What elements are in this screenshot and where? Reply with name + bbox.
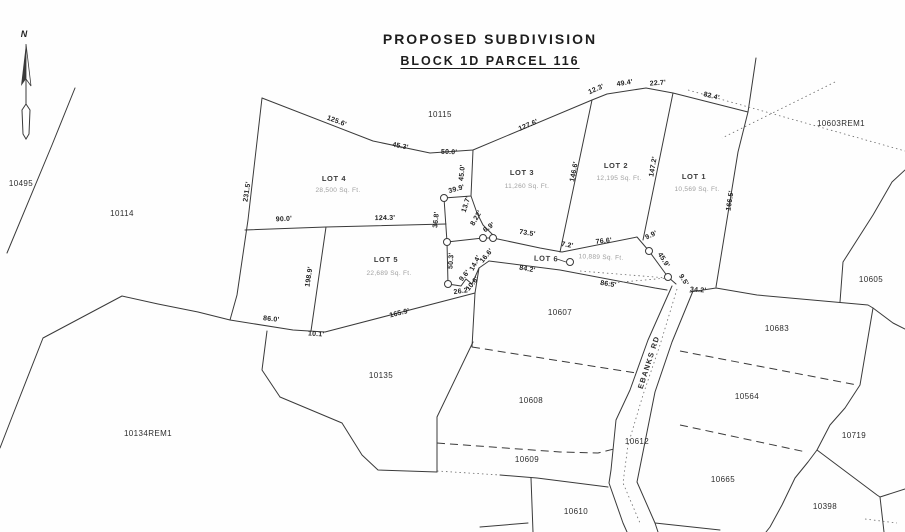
monument-icon [441,195,448,202]
boundary-line-dashed [437,443,614,453]
dimension-label: 86.5' [600,280,617,289]
boundary-line [748,58,756,112]
boundary-line [500,475,608,487]
boundary-line [489,261,667,290]
dimension-label: 146.6' [569,161,580,182]
parcel-number: 10608 [519,396,543,405]
lot6-leader-line [557,259,566,262]
boundary-line [7,88,75,253]
dimension-label: 166.5' [725,190,735,211]
boundary-line [311,227,326,331]
parcel-number: 10609 [515,455,539,464]
monument-icon [480,235,487,242]
dimension-label: 34.2' [690,286,707,294]
dimension-label: 165.9' [389,308,411,320]
dimension-label: 198.9' [304,266,314,287]
boundary-line-dashed [680,425,806,452]
parcel-number: 10135 [369,371,393,380]
dimension-label: 9.6' [458,269,471,283]
monument-icon [490,235,497,242]
lot-area-label: 12,195 Sq. Ft. [596,175,641,182]
boundary-line [280,397,437,472]
north-arrow-head-left [21,44,26,86]
boundary-line-dotted [580,271,667,284]
boundary-line [643,93,673,240]
parcel-number: 10603REM1 [817,119,865,128]
monument-icon [444,239,451,246]
road-centerline-dotted [623,289,677,523]
dimension-label: 86.0' [263,315,280,324]
plat-drawing: N [0,0,905,532]
parcel-number: 10683 [765,324,789,333]
dimension-label: 13.7' [461,196,473,214]
boundary-line [880,489,905,497]
dimension-label: 147.2' [648,156,658,177]
monument-icon [445,281,452,288]
dimension-label: 231.5' [242,181,252,202]
dimension-label: 90.0' [276,216,293,224]
boundary-line-dashed [680,351,857,385]
boundary-line [817,450,884,532]
road-edge-west [609,286,672,532]
lot-label: LOT 2 [604,161,628,170]
dimension-label: 10.1' [308,330,325,338]
parcel-boundaries [0,58,905,532]
dimension-label: 9.5' [677,273,689,287]
north-arrow-tail [22,104,30,139]
map-labels: 125.6'45.3'50.0'127.6'12.3'49.4'22.7'82.… [9,79,883,516]
lot-area-label: 11,260 Sq. Ft. [505,183,550,190]
boundary-line-dotted [437,471,500,475]
road-edge-east [637,291,693,532]
dimension-label: 36.8' [432,211,441,228]
boundary-line [472,293,475,347]
dimension-label: 50.0' [441,149,458,157]
dimension-label: 45.0' [458,164,467,181]
lot-label: LOT 3 [510,168,534,177]
parcel-number: 10612 [625,437,649,446]
boundary-line [245,227,326,230]
plat-map-canvas: PROPOSED SUBDIVISION BLOCK 1D PARCEL 116… [0,0,905,532]
north-arrow-icon: N [21,29,31,139]
lot-area-label: 10,569 Sq. Ft. [674,186,719,193]
boundary-line-dashed [472,347,636,373]
dimension-label: 6.9' [482,221,496,234]
dimension-label: 7.2' [561,241,574,250]
boundary-line [230,98,262,320]
lot-label: LOT 6 [534,254,559,264]
parcel-number: 10605 [859,275,883,284]
dimension-label: 12.3' [588,83,606,96]
boundary-line [0,293,475,448]
parcel-number: 10564 [735,392,759,401]
parcel-number: 10719 [842,431,866,440]
dimension-label: 82.4' [703,91,721,102]
dimension-label: 22.7' [650,79,667,87]
dimension-label: 45.3' [392,142,409,152]
dimension-label: 73.5' [519,229,536,238]
lot-label: LOT 1 [682,172,706,181]
boundary-line [326,224,446,227]
boundary-line [655,523,720,530]
parcel-number: 10134REM1 [124,429,172,438]
boundary-line [437,342,473,472]
dimension-label: 76.6' [595,237,612,246]
lot-label: LOT 5 [374,255,398,264]
boundary-line [766,308,873,532]
north-arrow-head-right [26,44,31,86]
lot-area-label: 28,500 Sq. Ft. [315,187,360,194]
dimension-label: 9.9' [644,230,658,242]
boundary-line [531,478,533,532]
dimension-label: 45.9' [656,251,671,269]
lot-area-label: 10,889 Sq. Ft. [578,253,623,262]
parcel-number: 10607 [548,308,572,317]
dimension-label: 127.6' [518,118,540,132]
lot-label: LOT 4 [322,174,346,183]
dimension-label: 39.9' [448,184,466,195]
parcel-number: 10115 [428,110,452,119]
dimension-label: 124.3' [375,215,396,222]
parcel-number: 10665 [711,475,735,484]
boundary-line [444,150,473,242]
lot-area-label: 22,689 Sq. Ft. [366,270,411,277]
monument-icon [646,248,653,255]
monument-icon [567,259,574,266]
boundary-line [480,523,528,527]
dimension-label: 49.4' [616,79,633,88]
dimension-label: 50.3' [447,252,455,269]
north-label: N [21,29,28,39]
parcel-number: 10398 [813,502,837,511]
monument-icon [665,274,672,281]
parcel-number: 10114 [110,209,134,218]
parcel-number: 10495 [9,179,33,188]
dimension-label: 84.2' [519,265,536,275]
boundary-line [262,331,280,397]
parcel-number: 10610 [564,507,588,516]
dimension-label: 8.22' [470,209,484,227]
boundary-line-dotted [688,90,905,151]
boundary-line-dotted [865,519,897,523]
